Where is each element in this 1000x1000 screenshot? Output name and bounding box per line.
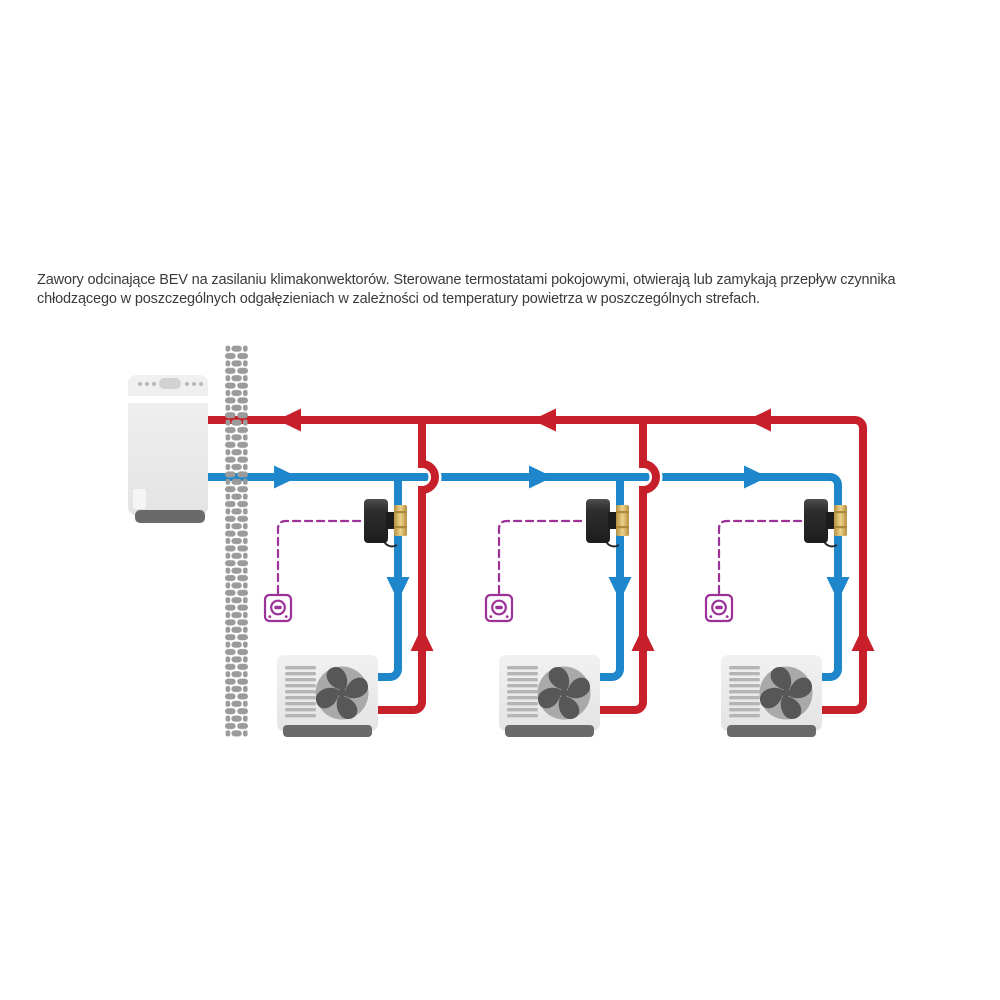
flow-arrow-return-up-3: [852, 627, 875, 651]
flow-arrow-return-left-1: [277, 409, 301, 432]
heat-pump-icon: [128, 375, 208, 523]
thermostat-wire-1: [278, 521, 362, 593]
thermostat-wires: [278, 521, 802, 593]
flow-arrow-return-left-3: [747, 409, 771, 432]
fan-coil-icon-3: [721, 655, 822, 737]
flow-arrow-return-up-1: [411, 627, 434, 651]
supply-pipe-blue: [208, 477, 838, 677]
flow-arrow-supply-down-3: [827, 577, 850, 601]
flow-arrow-supply-down-1: [387, 577, 410, 601]
flow-arrow-supply-right-1: [274, 466, 298, 489]
flow-arrow-supply-right-2: [529, 466, 553, 489]
flow-arrow-supply-right-3: [744, 466, 768, 489]
flow-arrow-return-left-2: [532, 409, 556, 432]
thermostat-wire-3: [719, 521, 802, 593]
fan-coil-icon-1: [277, 655, 378, 737]
room-thermostat-icon-3: [706, 595, 732, 621]
flow-arrow-supply-down-2: [609, 577, 632, 601]
brick-wall-icon: [225, 345, 248, 737]
fan-coil-icon-2: [499, 655, 600, 737]
room-thermostat-icon-1: [265, 595, 291, 621]
page: Zawory odcinające BEV na zasilaniu klima…: [0, 0, 1000, 1000]
flow-arrow-return-up-2: [632, 627, 655, 651]
thermostat-wire-2: [499, 521, 584, 593]
room-thermostat-icon-2: [486, 595, 512, 621]
system-diagram: [0, 0, 1000, 1000]
